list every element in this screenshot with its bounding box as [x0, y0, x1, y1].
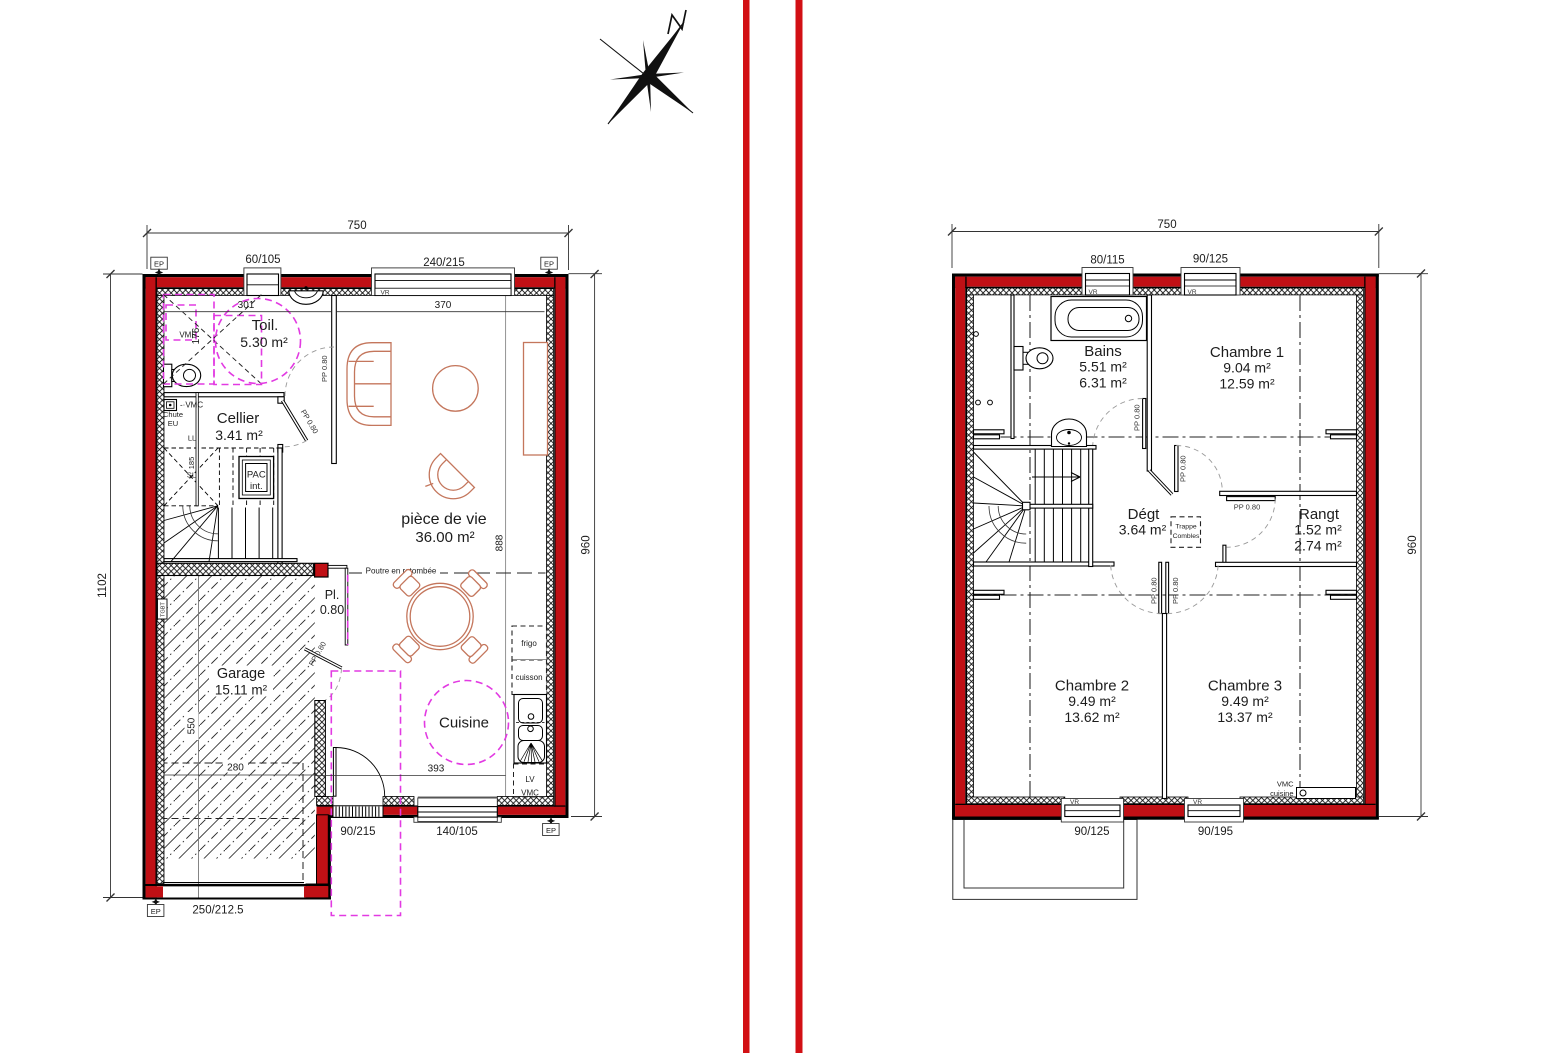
svg-text:Bains: Bains [1084, 343, 1122, 360]
svg-text:PP 0.80: PP 0.80 [1133, 404, 1142, 431]
svg-text:VMC: VMC [521, 789, 539, 798]
svg-text:VME: VME [179, 331, 196, 340]
svg-text:301: 301 [238, 300, 255, 311]
svg-text:VR: VR [1193, 799, 1202, 806]
svg-text:EP: EP [546, 826, 556, 835]
svg-text:cuisson: cuisson [515, 673, 542, 682]
svg-text:TGBT: TGBT [161, 602, 167, 617]
svg-text:PP 0.80: PP 0.80 [1234, 503, 1261, 512]
svg-text:2.74 m²: 2.74 m² [1294, 538, 1342, 554]
svg-text:LV: LV [525, 775, 535, 784]
svg-text:80/115: 80/115 [1090, 255, 1124, 267]
svg-text:15.11 m²: 15.11 m² [215, 683, 268, 698]
svg-text:cuisine: cuisine [1270, 789, 1293, 798]
svg-text:EP: EP [544, 260, 554, 269]
svg-text:EP: EP [154, 260, 164, 269]
svg-text:9.49 m²: 9.49 m² [1068, 693, 1116, 709]
svg-text:PP 0.80: PP 0.80 [1171, 577, 1180, 604]
svg-text:PAC: PAC [247, 470, 266, 481]
svg-text:Chute: Chute [163, 410, 183, 419]
svg-text:VR: VR [1089, 289, 1098, 296]
svg-text:VR: VR [1070, 799, 1079, 806]
svg-text:1102: 1102 [97, 573, 109, 598]
svg-text:960: 960 [1407, 535, 1419, 554]
svg-text:-·VMC: -·VMC [180, 401, 203, 410]
svg-text:5.30 m²: 5.30 m² [240, 334, 288, 350]
svg-text:Rangt: Rangt [1299, 506, 1340, 523]
svg-text:VR: VR [381, 289, 390, 296]
svg-text:1.52 m²: 1.52 m² [1294, 522, 1342, 538]
svg-text:9.49 m²: 9.49 m² [1221, 693, 1269, 709]
svg-text:250/212.5: 250/212.5 [192, 905, 243, 917]
svg-text:Chambre 1: Chambre 1 [1210, 344, 1284, 361]
svg-text:12.59 m²: 12.59 m² [1219, 376, 1275, 392]
svg-text:240/215: 240/215 [423, 257, 465, 269]
svg-text:Trappe: Trappe [1175, 524, 1197, 531]
svg-text:int.: int. [250, 481, 263, 492]
svg-text:6.31 m²: 6.31 m² [1079, 375, 1127, 391]
svg-text:SL: SL [187, 471, 196, 480]
svg-text:5.51 m²: 5.51 m² [1079, 359, 1127, 375]
svg-text:888: 888 [495, 534, 506, 551]
svg-text:Pl.: Pl. [325, 588, 340, 602]
svg-text:60/105: 60/105 [245, 254, 280, 266]
svg-text:393: 393 [428, 764, 445, 775]
svg-text:pièce de vie: pièce de vie [401, 511, 486, 528]
svg-text:750: 750 [347, 220, 366, 232]
svg-text:Dégt: Dégt [1128, 506, 1161, 523]
svg-text:LL: LL [188, 434, 196, 443]
svg-text:VMC: VMC [1277, 780, 1294, 789]
svg-text:Cellier: Cellier [217, 410, 260, 427]
svg-text:EP: EP [151, 907, 161, 916]
svg-text:Combles: Combles [1173, 533, 1200, 540]
svg-text:13.37 m²: 13.37 m² [1217, 709, 1273, 725]
svg-text:VR: VR [1188, 289, 1197, 296]
svg-text:PP 0.80: PP 0.80 [1150, 577, 1159, 604]
svg-text:13.62 m²: 13.62 m² [1064, 709, 1120, 725]
svg-text:9.04 m²: 9.04 m² [1223, 360, 1271, 376]
svg-text:Chambre 3: Chambre 3 [1208, 678, 1282, 695]
svg-text:PP 0.80: PP 0.80 [320, 355, 329, 382]
svg-text:PP 0.80: PP 0.80 [1179, 455, 1188, 482]
svg-text:280: 280 [227, 763, 244, 774]
svg-text:EU: EU [168, 419, 178, 428]
svg-text:Toil.: Toil. [252, 317, 279, 334]
svg-text:185: 185 [187, 457, 196, 470]
svg-text:Garage: Garage [217, 666, 265, 682]
svg-text:90/215: 90/215 [340, 826, 375, 838]
svg-text:550: 550 [187, 717, 198, 734]
svg-text:36.00 m²: 36.00 m² [415, 529, 474, 546]
svg-text:Cuisine: Cuisine [439, 715, 489, 732]
svg-text:3.64 m²: 3.64 m² [1119, 522, 1167, 538]
svg-text:Poutre en retombée: Poutre en retombée [366, 567, 437, 576]
svg-text:frigo: frigo [521, 639, 537, 648]
svg-text:90/125: 90/125 [1074, 826, 1109, 838]
svg-text:140/105: 140/105 [436, 826, 478, 838]
svg-text:Chambre 2: Chambre 2 [1055, 678, 1129, 695]
svg-text:370: 370 [435, 300, 452, 311]
svg-text:90/195: 90/195 [1198, 826, 1233, 838]
svg-text:90/125: 90/125 [1193, 254, 1228, 266]
svg-text:750: 750 [1157, 219, 1176, 231]
svg-text:960: 960 [581, 535, 593, 554]
svg-text:3.41 m²: 3.41 m² [215, 427, 263, 443]
svg-text:0.80: 0.80 [320, 603, 344, 617]
